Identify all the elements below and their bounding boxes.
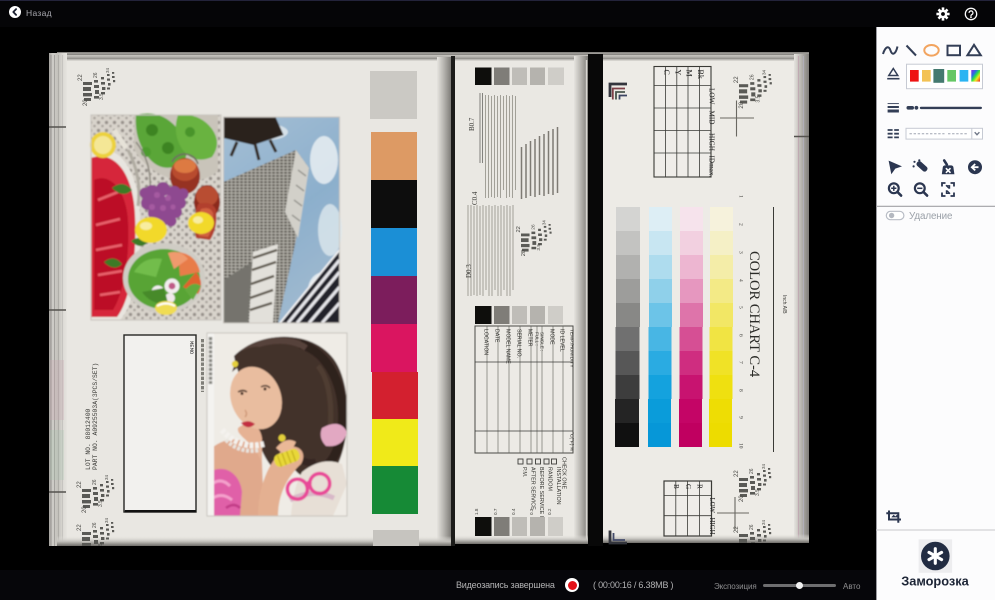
svg-text:7: 7 (738, 361, 744, 364)
svg-text:G: G (684, 484, 692, 489)
svg-text:IDmax.: IDmax. (708, 156, 716, 178)
svg-text:BEFORE SERVICE 0.3: BEFORE SERVICE 0.3 (538, 467, 544, 523)
svg-text:D0.3: D0.3 (465, 264, 473, 278)
svg-text:M: M (685, 70, 694, 77)
svg-text:HIGH: HIGH (708, 518, 715, 535)
svg-text:3: 3 (738, 251, 744, 254)
svg-text:4: 4 (738, 279, 744, 282)
svg-text:INSTALLATION: INSTALLATION (555, 467, 561, 505)
svg-text:LOT NO. 88012400: LOT NO. 88012400 (85, 408, 92, 470)
svg-text:COLOR CHART C-4: COLOR CHART C-4 (746, 251, 762, 378)
svg-text:10: 10 (738, 443, 744, 449)
svg-text:R: R (696, 484, 704, 489)
svg-text:PART NO. A0925503A(3PCS/SET): PART NO. A0925503A(3PCS/SET) (92, 363, 99, 470)
svg-text:0.7: 0.7 (493, 508, 498, 515)
svg-text:MODEL NAME: MODEL NAME (505, 329, 511, 364)
svg-text:SINGLE :: SINGLE : (540, 332, 545, 351)
svg-text:B: B (672, 484, 680, 489)
svg-text:AFTER SERVICE: AFTER SERVICE (530, 467, 536, 510)
svg-text:RANDOM: RANDOM (547, 467, 553, 491)
svg-text:1.8: 1.8 (474, 508, 479, 515)
svg-text:5: 5 (738, 306, 744, 309)
svg-text:8: 8 (738, 389, 744, 392)
svg-text:ID LEVEL: ID LEVEL (559, 329, 565, 352)
svg-text:Inch A/B: Inch A/B (781, 295, 787, 314)
svg-text:DATE: DATE (494, 329, 500, 343)
svg-text:6: 6 (738, 334, 744, 337)
svg-text:Удаление: Удаление (909, 211, 953, 222)
svg-text:P.M.: P.M. (521, 467, 527, 477)
svg-text:Y: Y (673, 70, 682, 76)
svg-text:MID: MID (708, 111, 716, 125)
svg-text:LOW: LOW (708, 88, 716, 105)
svg-text:°C(°F) %: °C(°F) % (569, 432, 575, 452)
svg-text:2: 2 (738, 223, 744, 226)
svg-text:B0.7: B0.7 (468, 117, 476, 131)
svg-text:LOCATION: LOCATION (483, 329, 489, 355)
svg-text:0.4: 0.4 (511, 508, 516, 515)
svg-text:9: 9 (738, 416, 744, 419)
svg-text:METER: METER (527, 329, 533, 347)
svg-text:C: C (662, 70, 671, 75)
svg-text:TEMP./HUMIDITY: TEMP./HUMIDITY (569, 329, 575, 368)
svg-text:Заморозка: Заморозка (901, 574, 969, 589)
svg-text:MEMO: MEMO (188, 341, 195, 355)
svg-text:FULL :: FULL : (535, 332, 540, 346)
svg-text:0.2: 0.2 (547, 508, 552, 515)
svg-text:Bk: Bk (696, 70, 705, 79)
svg-text:LOW: LOW (708, 498, 715, 514)
svg-text:MODE: MODE (549, 329, 555, 345)
svg-text:1: 1 (738, 195, 744, 198)
svg-text:C0.4: C0.4 (471, 191, 479, 205)
svg-text:HIGH: HIGH (708, 133, 716, 151)
svg-text:SERIAL NO.: SERIAL NO. (516, 329, 522, 358)
svg-text:0.3: 0.3 (529, 508, 534, 515)
